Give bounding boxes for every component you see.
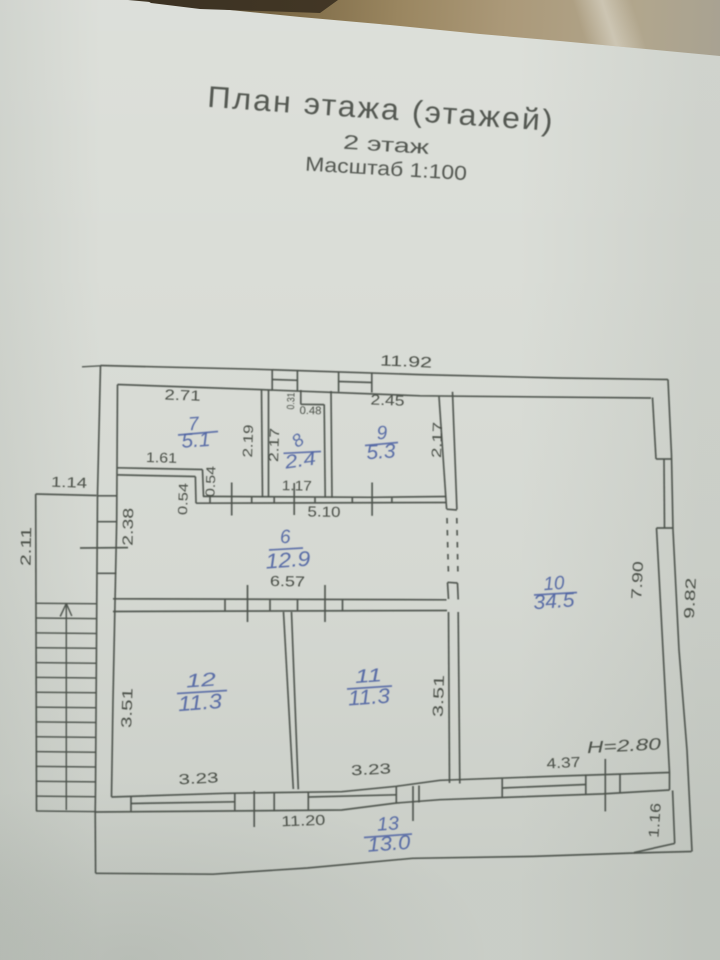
svg-text:11.20: 11.20 [281, 813, 326, 831]
svg-text:11.92: 11.92 [380, 352, 433, 371]
svg-text:1.17: 1.17 [282, 477, 313, 494]
svg-text:13.0: 13.0 [367, 832, 411, 857]
svg-text:1.16: 1.16 [646, 802, 664, 838]
svg-text:2.4: 2.4 [282, 448, 317, 473]
svg-text:5.3: 5.3 [366, 440, 396, 464]
svg-text:0.48: 0.48 [299, 405, 321, 417]
svg-text:2.45: 2.45 [370, 393, 405, 410]
svg-text:6: 6 [279, 527, 291, 549]
svg-text:1.14: 1.14 [51, 475, 88, 492]
svg-text:6.57: 6.57 [270, 574, 305, 591]
svg-text:34.5: 34.5 [533, 589, 576, 614]
svg-text:H=2.80: H=2.80 [587, 735, 663, 757]
svg-text:3.51: 3.51 [431, 675, 448, 718]
svg-text:2.38: 2.38 [120, 508, 137, 546]
svg-text:2.19: 2.19 [240, 424, 256, 458]
svg-text:3.51: 3.51 [119, 688, 136, 729]
svg-text:3.23: 3.23 [351, 761, 392, 779]
svg-text:Масштаб 1:100: Масштаб 1:100 [305, 153, 468, 185]
svg-text:1.61: 1.61 [146, 449, 178, 466]
svg-text:5.1: 5.1 [181, 429, 211, 453]
svg-text:4.37: 4.37 [546, 755, 581, 773]
svg-text:2.71: 2.71 [164, 388, 201, 405]
svg-text:9.82: 9.82 [682, 577, 700, 619]
svg-text:5.10: 5.10 [307, 504, 340, 521]
svg-text:2.17: 2.17 [266, 428, 282, 463]
svg-text:План этажа (этажей): План этажа (этажей) [206, 81, 555, 138]
svg-text:0.54: 0.54 [202, 466, 218, 498]
svg-text:3.23: 3.23 [178, 770, 219, 788]
svg-text:2.17: 2.17 [429, 422, 445, 459]
svg-text:8: 8 [288, 429, 308, 451]
svg-text:2.11: 2.11 [18, 527, 35, 566]
svg-text:12: 12 [185, 669, 217, 692]
svg-text:2 этаж: 2 этаж [342, 132, 430, 159]
svg-text:11.3: 11.3 [347, 685, 391, 711]
svg-text:12.9: 12.9 [265, 547, 312, 573]
svg-text:11.3: 11.3 [177, 690, 223, 716]
svg-text:0.54: 0.54 [175, 483, 191, 516]
svg-text:0.31: 0.31 [285, 392, 298, 410]
svg-text:7.90: 7.90 [629, 561, 647, 600]
